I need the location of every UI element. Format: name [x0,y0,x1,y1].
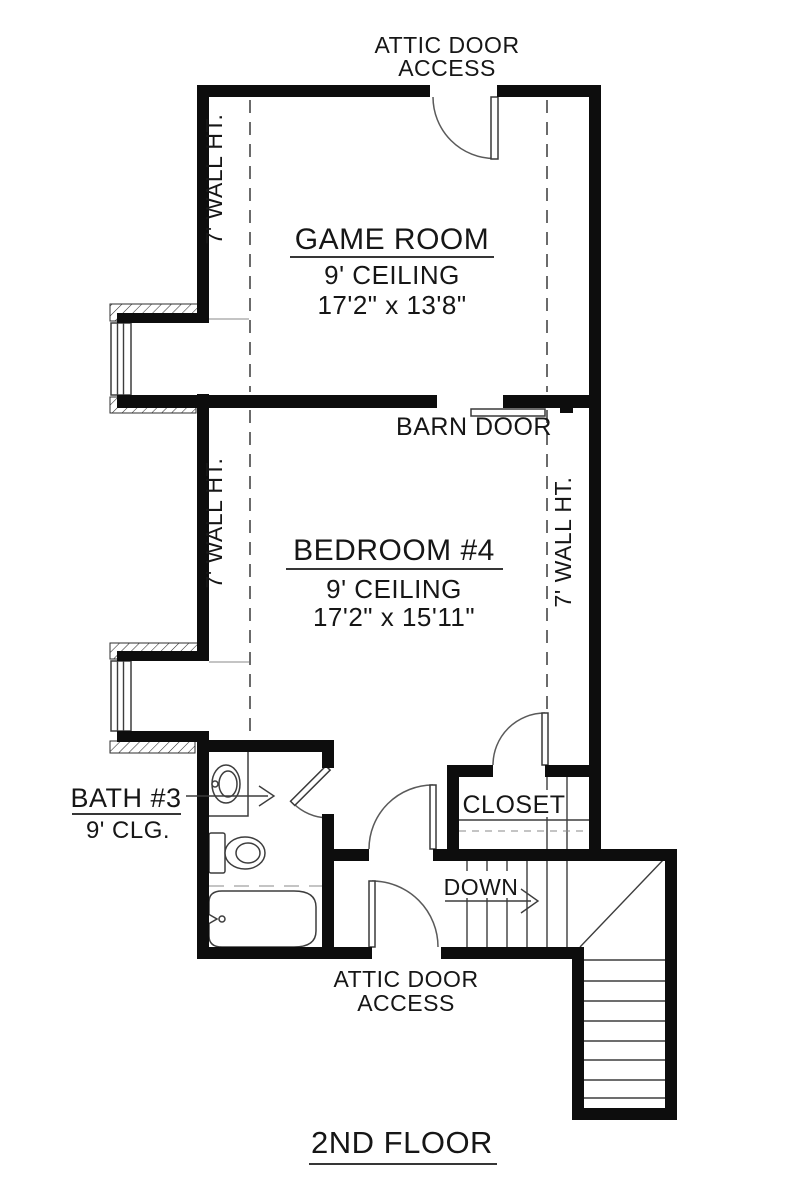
game-room-ceiling: 9' CEILING [324,260,460,290]
wall-height-bedroom-left: 7' WALL HT. [201,458,227,589]
barn-door-label: BARN DOOR [396,413,552,441]
floor-plan-drawing: ATTIC DOOR ACCESS GAME ROOM 9' CEILING 1… [0,0,811,1200]
bedroom-door [493,713,548,765]
svg-text:ACCESS: ACCESS [398,55,496,81]
closet-name: CLOSET [462,791,565,819]
toilet-tank [209,833,225,873]
attic-access-bottom-label: ATTIC DOOR [333,966,478,992]
bath-ceiling: 9' CLG. [86,817,170,844]
attic-door-bottom [369,881,438,947]
stair-landing-door [369,785,436,849]
bath-door [291,766,331,818]
wall-height-game-left: 7' WALL HT. [201,114,227,245]
down-label: DOWN [444,874,519,900]
bath-fixtures [203,745,322,947]
bath-name: BATH #3 [70,783,181,813]
labels: ATTIC DOOR ACCESS GAME ROOM 9' CEILING 1… [70,32,576,1164]
staircase [467,777,665,1098]
svg-text:ACCESS: ACCESS [357,990,455,1016]
game-room-dimensions: 17'2" x 13'8" [317,290,466,320]
attic-door-top [433,97,498,159]
game-room-name: GAME ROOM [295,223,490,256]
bedroom-dimensions: 17'2" x 15'11" [313,602,475,632]
dormer2-hatch-bottom [110,741,195,753]
window-dormer2 [111,661,131,731]
floor-title: 2ND FLOOR [311,1125,493,1160]
window-dormer1 [111,323,131,395]
floor-plan-page: ATTIC DOOR ACCESS GAME ROOM 9' CEILING 1… [0,0,811,1200]
wall-height-bedroom-right: 7' WALL HT. [550,477,576,608]
closet-shelf [459,820,589,831]
bedroom-name: BEDROOM #4 [293,534,495,567]
bedroom-ceiling: 9' CEILING [326,574,462,604]
